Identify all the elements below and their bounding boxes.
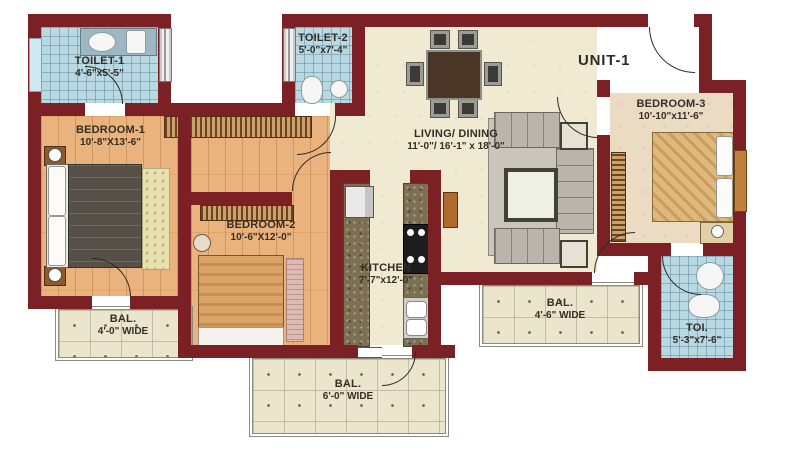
wall-segment [28,14,170,27]
room-name: TOI. [659,322,735,335]
wardrobe [611,152,626,242]
wall-segment [352,14,365,116]
room-name: BAL. [252,378,444,391]
dining-chair [430,99,450,118]
wall-segment [648,358,746,371]
wall-segment [28,103,85,116]
coffee-table [504,168,558,222]
balcony1-label: BAL. 4'-0" WIDE [58,313,188,338]
room-dims: 5'-3"x7'-6" [659,335,735,347]
dining-chair [458,30,478,49]
window [159,28,172,82]
wall-segment [441,272,592,285]
fridge-icon [345,186,374,218]
toi-label: TOI. 5'-3"x7'-6" [659,322,735,347]
wall-segment [597,80,610,97]
wall-segment [28,296,92,309]
bedroom1-label: BEDROOM-1 10'-8"X13'-6" [48,124,173,149]
burner [407,229,414,236]
kitchen-label: KITCHEN 7'-7"x12'-0" [338,262,434,287]
rug [286,258,304,342]
window [734,150,747,212]
wall-segment [648,243,661,371]
side-table [560,240,588,268]
toilet2-label: TOILET-2 5'-0"x7'-4" [288,32,358,57]
toilet-icon [688,294,720,318]
toilet-icon [126,30,146,54]
room-name: TOILET-2 [288,32,358,45]
room-dims: 11'-0"/ 16'-1" x 18'-0" [372,141,540,153]
pillow [198,327,284,347]
wall-segment [634,272,661,285]
pillow [716,136,733,176]
wall-segment [190,192,292,205]
pillow [716,178,733,218]
sofa [556,148,594,234]
room-name: TOILET-1 [41,55,158,68]
room-dims: 7'-7"x12'-0" [338,275,434,287]
sink-basin [406,301,427,318]
wall-segment [125,103,171,116]
wall-segment [703,243,746,256]
sofa [494,228,560,264]
room-dims: 4'-6"x5'-5" [41,68,158,80]
stool-icon [711,225,724,238]
room-dims: 4'-6" WIDE [482,310,638,322]
pillow [48,216,66,266]
room-dims: 5'-0"x7'-4" [288,45,358,57]
room-name: BEDROOM-1 [48,124,173,137]
bedroom3-label: BEDROOM-3 10'-10"x11'-6" [608,98,734,123]
rug [142,168,170,270]
toilet1-label: TOILET-1 4'-6"x5'-5" [41,55,158,80]
wall-segment [661,243,671,256]
wall-segment [178,345,342,358]
dining-chair [430,30,450,49]
wall-segment [412,345,455,358]
balcony2-label: BAL. 6'-0" WIDE [252,378,444,403]
washbasin-icon [330,80,348,98]
unit-title: UNIT-1 [578,52,630,69]
burner [418,229,425,236]
wall-segment [597,135,610,256]
room-name: BEDROOM-2 [196,219,326,232]
pillow [48,166,66,216]
sink-basin [406,319,427,336]
wall-segment [330,345,358,358]
room-dims: 10'-6"X12'-0" [196,232,326,244]
room-name: BAL. [482,297,638,310]
washbasin-icon [88,32,116,52]
dining-chair [458,99,478,118]
blanket [68,164,142,268]
floor-plan: TOILET-1 4'-6"x5'-5" TOILET-2 5'-0"x7'-4… [0,0,800,459]
wall-segment [352,14,648,27]
room-dims: 10'-10"x11'-6" [608,111,734,123]
lamp-icon [48,148,62,162]
wall-segment [130,296,178,309]
room-dims: 10'-8"X13'-6" [48,137,173,149]
room-name: BAL. [58,313,188,326]
room-name: KITCHEN [338,262,434,275]
dining-chair [484,62,502,86]
toilet-icon [301,76,323,104]
dining-table [426,50,482,100]
wall-segment [330,170,370,183]
bedroom2-label: BEDROOM-2 10'-6"X12'-0" [196,219,326,244]
balcony3-label: BAL. 4'-6" WIDE [482,297,638,322]
entrance-door-arc [649,27,695,73]
room-name: LIVING/ DINING [372,128,540,141]
room-dims: 6'-0" WIDE [252,391,444,403]
room-dims: 4'-0" WIDE [58,326,188,338]
living-label: LIVING/ DINING 11'-0"/ 16'-1" x 18'-0" [372,128,540,153]
wall-segment [158,103,295,116]
room-name: BEDROOM-3 [608,98,734,111]
dining-chair [406,62,424,86]
cabinet [443,192,458,228]
door-threshold [358,347,382,358]
lamp-icon [48,268,62,282]
